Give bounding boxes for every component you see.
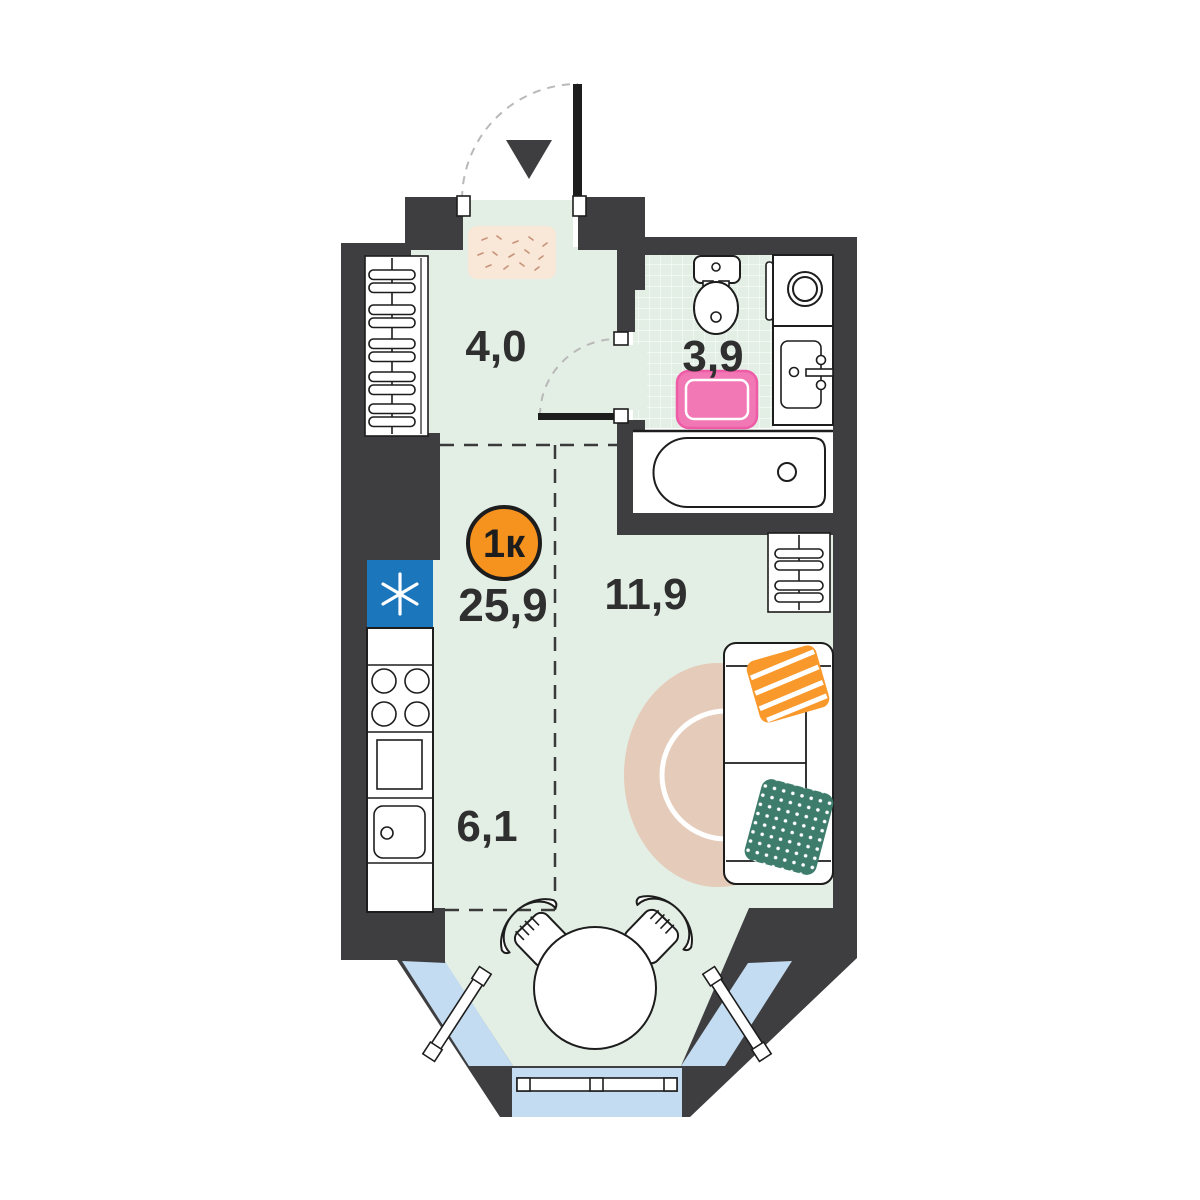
- entry-arrow-icon: [506, 140, 552, 179]
- oven: [377, 740, 422, 789]
- window-bottom-frame: [517, 1078, 677, 1091]
- wall-closet-block: [341, 433, 440, 560]
- living-area-label: 11,9: [604, 570, 687, 619]
- window-bottom-glazing: [512, 1068, 682, 1117]
- washing-machine: [766, 255, 833, 326]
- entry-door-leaf: [573, 84, 582, 202]
- apartment-badge: 1к: [468, 507, 540, 579]
- doormat: [468, 226, 556, 279]
- wall-left: [341, 243, 367, 958]
- wardrobe: [768, 533, 830, 612]
- wall-bath-upper: [617, 250, 645, 290]
- bathroom-door-jamb-bottom: [614, 409, 628, 423]
- wall-tub-bottom: [633, 513, 833, 535]
- hallway-closet: [365, 256, 428, 436]
- entry-door-jamb-right: [573, 196, 586, 216]
- bathroom-doorway-floor: [617, 345, 647, 410]
- wall-entry-right: [578, 197, 645, 250]
- bathroom-door-jamb-top: [614, 332, 628, 345]
- entry-door: [457, 84, 586, 216]
- wall-bath-door-top: [617, 290, 635, 332]
- bathroom-door-leaf: [538, 413, 617, 420]
- wall-top-right: [640, 237, 857, 255]
- wall-entry-left: [405, 197, 463, 250]
- hallway-area-label: 4,0: [465, 322, 526, 371]
- kitchen-counter: [367, 628, 433, 912]
- toilet: [694, 256, 740, 334]
- entry-door-jamb-left: [457, 196, 470, 216]
- bathroom-area-label: 3,9: [682, 332, 743, 381]
- bathtub: [633, 430, 833, 513]
- kitchen-sink: [374, 806, 425, 858]
- kitchen-fridge: [367, 560, 433, 628]
- badge-label: 1к: [483, 522, 526, 566]
- dining-table: [534, 927, 656, 1049]
- floor-plan-page: 1к 25,9 4,0 3,9 11,9 6,1: [0, 0, 1200, 1200]
- sofa: [724, 643, 836, 884]
- kitchen-area-label: 6,1: [456, 802, 517, 851]
- wall-right: [833, 237, 857, 958]
- floor-plan: 1к 25,9 4,0 3,9 11,9 6,1: [0, 0, 1200, 1200]
- bathroom-sink: [773, 326, 833, 425]
- total-area-label: 25,9: [458, 579, 548, 631]
